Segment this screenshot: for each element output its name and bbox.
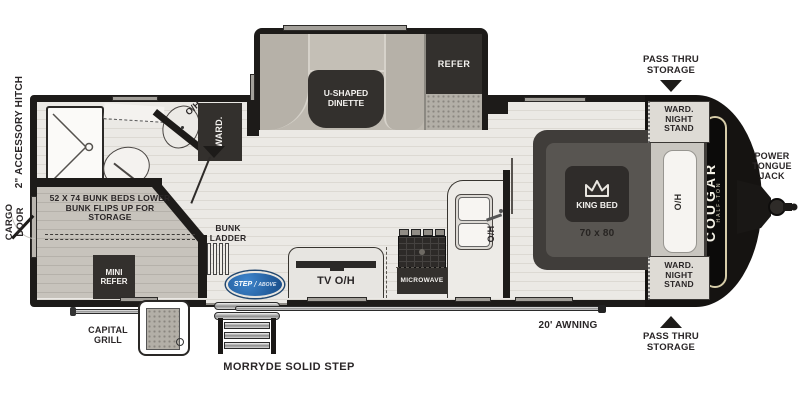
bedroom-wall-line [511, 158, 513, 214]
arrow-down-icon [660, 80, 682, 92]
brand-sub: HALF-TON [717, 116, 722, 288]
pass-thru-top-label: PASS THRU STORAGE [628, 55, 714, 76]
grill-rail-cap [70, 307, 76, 316]
tv-counter [288, 247, 384, 298]
window-bedroom-bottom [515, 297, 573, 302]
slide-wall-stub-left [247, 100, 259, 136]
bunk-wall-top [37, 178, 162, 187]
tongue-jack-icon [735, 172, 799, 242]
mini-refer: MINI REFER [93, 255, 135, 299]
step-rail-right [271, 318, 276, 354]
range-burner-row [399, 229, 445, 236]
stepabove-word2: ABOVE [258, 282, 276, 288]
floorplan-canvas: COUGAR HALF-TON U-SHAPED DINETTE REFER O… [0, 0, 800, 400]
king-bed-box: KING BED [565, 166, 629, 222]
pass-thru-bottom-label: PASS THRU STORAGE [628, 332, 714, 353]
bunk-fold-line [45, 234, 195, 240]
window-bedroom-top [524, 97, 586, 102]
tv-mount [330, 268, 344, 271]
window-bath [112, 96, 158, 101]
bunk-ladder-icon [207, 243, 229, 275]
bed-size-label: 70 x 80 [560, 228, 634, 239]
stepabove-word1: STEP [234, 281, 252, 288]
window-bottom-mid [455, 297, 491, 302]
power-tongue-jack-label: POWER TONGUE JACK [744, 151, 800, 181]
morryde-step-label: MORRYDE SOLID STEP [196, 361, 382, 373]
dinette-bench-top [310, 34, 384, 72]
step-rail-left [218, 318, 223, 354]
bath-door-hinge-icon [203, 146, 225, 158]
arrow-up-icon [660, 316, 682, 328]
ward-nightstand-bottom-label: WARD. NIGHT STAND [650, 261, 708, 290]
step-tread1 [224, 322, 270, 329]
step-tread2 [224, 332, 270, 339]
awning-label: 20' AWNING [528, 320, 608, 331]
bunk-wall-right [198, 235, 207, 298]
sink-oh-label: O/H [486, 220, 498, 248]
step-tread3 [224, 342, 270, 349]
dinette-table: U-SHAPED DINETTE [308, 70, 384, 128]
capital-grill-label: CAPITAL GRILL [80, 325, 136, 345]
tv-icon [296, 261, 376, 268]
bunk-ladder-label: BUNK LADDER [196, 224, 260, 243]
dinette-bench-right [384, 34, 424, 130]
range-knob [419, 249, 425, 255]
crown-icon [582, 177, 612, 199]
bedroom-wall [503, 170, 510, 298]
stepabove-slash-icon: / [254, 280, 256, 289]
accessory-hitch-label: 2" ACCESSORY HITCH [14, 72, 42, 192]
slide-wall-stub-right [488, 102, 508, 114]
awning-end-cap [598, 305, 606, 313]
window-kitchen-bottom [307, 297, 367, 302]
bed-oh-label: O/H [673, 187, 687, 217]
stepabove-logo: STEP / ABOVE [226, 271, 284, 298]
kitchen-divider [386, 247, 387, 298]
grill-icon [138, 300, 190, 356]
shower-icon [48, 108, 102, 186]
ward-nightstand-top-label: WARD. NIGHT STAND [650, 105, 708, 134]
refrigerator: REFER [426, 34, 482, 94]
slide-window [283, 25, 407, 31]
shower [46, 106, 104, 188]
bunk-note: 52 X 74 BUNK BEDS LOWER BUNK FLIPS UP FO… [48, 194, 172, 223]
microwave: MICROWAVE [397, 268, 447, 294]
awning-bar [235, 306, 601, 311]
tv-oh-label: TV O/H [288, 275, 384, 287]
king-bed-label: KING BED [576, 201, 618, 211]
refer-counter [426, 94, 482, 130]
cargo-door-label: CARGO DOOR [5, 190, 31, 254]
grill-rail [74, 309, 140, 314]
